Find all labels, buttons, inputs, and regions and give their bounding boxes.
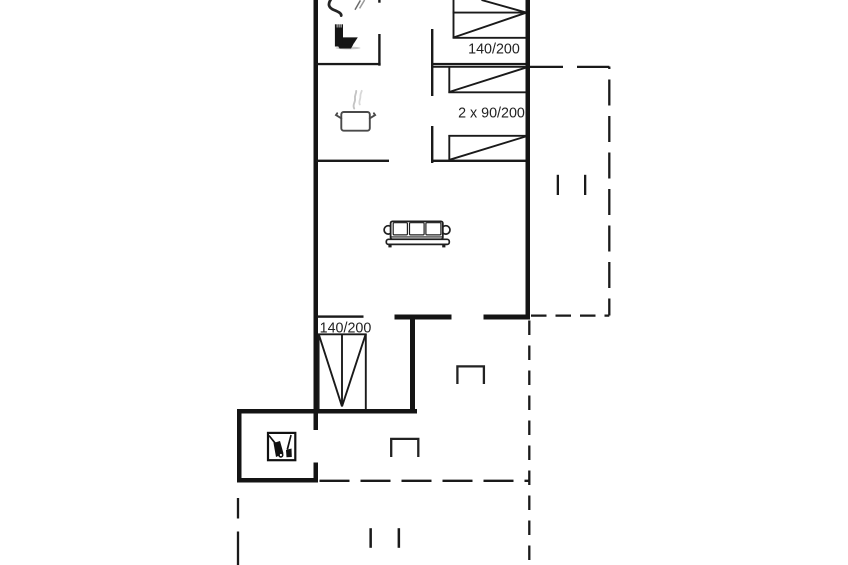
svg-text:2 x 90/200: 2 x 90/200 [458,105,525,121]
svg-text:140/200: 140/200 [468,42,520,58]
